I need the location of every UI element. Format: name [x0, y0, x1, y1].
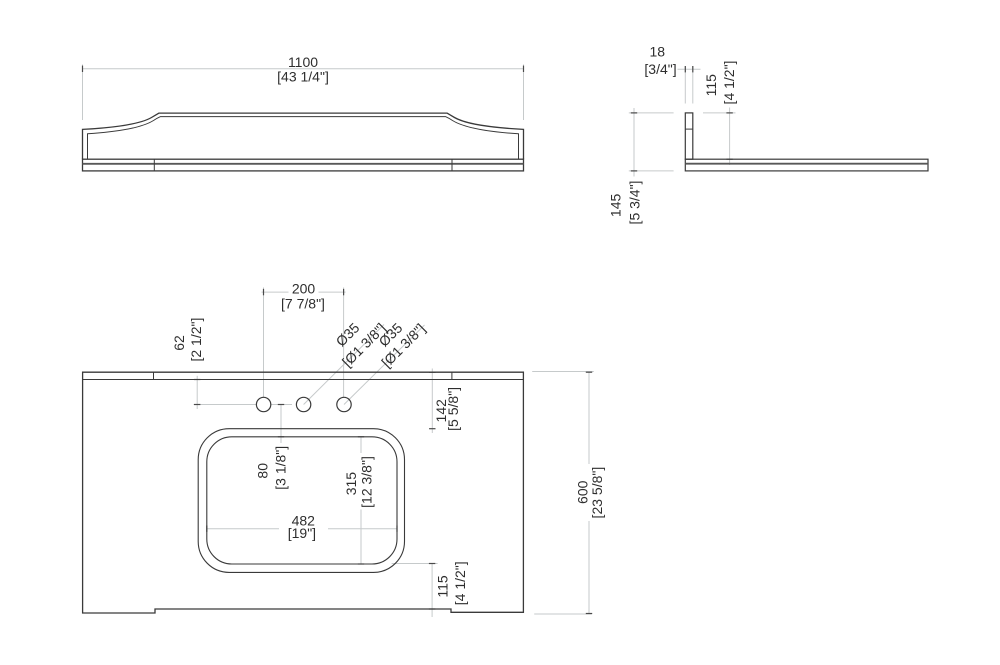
svg-text:80: 80 — [254, 463, 270, 479]
svg-text:[3 1/8"]: [3 1/8"] — [272, 446, 288, 490]
svg-text:[4 1/2"]: [4 1/2"] — [721, 61, 737, 105]
svg-text:[23 5/8"]: [23 5/8"] — [589, 467, 605, 519]
svg-text:115: 115 — [703, 74, 719, 97]
svg-text:[5 5/8"]: [5 5/8"] — [445, 387, 461, 431]
svg-text:[43 1/4"]: [43 1/4"] — [277, 69, 329, 85]
svg-text:[4 1/2"]: [4 1/2"] — [452, 561, 468, 605]
svg-text:600: 600 — [574, 480, 590, 504]
svg-text:[5 3/4"]: [5 3/4"] — [627, 181, 643, 225]
svg-text:18: 18 — [650, 44, 666, 60]
svg-text:115: 115 — [434, 575, 450, 598]
svg-text:[7 7/8"]: [7 7/8"] — [281, 296, 325, 312]
svg-text:145: 145 — [607, 194, 623, 218]
svg-text:200: 200 — [292, 281, 316, 297]
svg-text:[2 1/2"]: [2 1/2"] — [188, 318, 204, 362]
svg-text:[19"]: [19"] — [288, 525, 316, 541]
svg-text:62: 62 — [171, 335, 187, 351]
svg-text:[12 3/8"]: [12 3/8"] — [359, 456, 375, 508]
svg-text:[3/4"]: [3/4"] — [644, 61, 676, 77]
svg-text:315: 315 — [343, 472, 359, 496]
